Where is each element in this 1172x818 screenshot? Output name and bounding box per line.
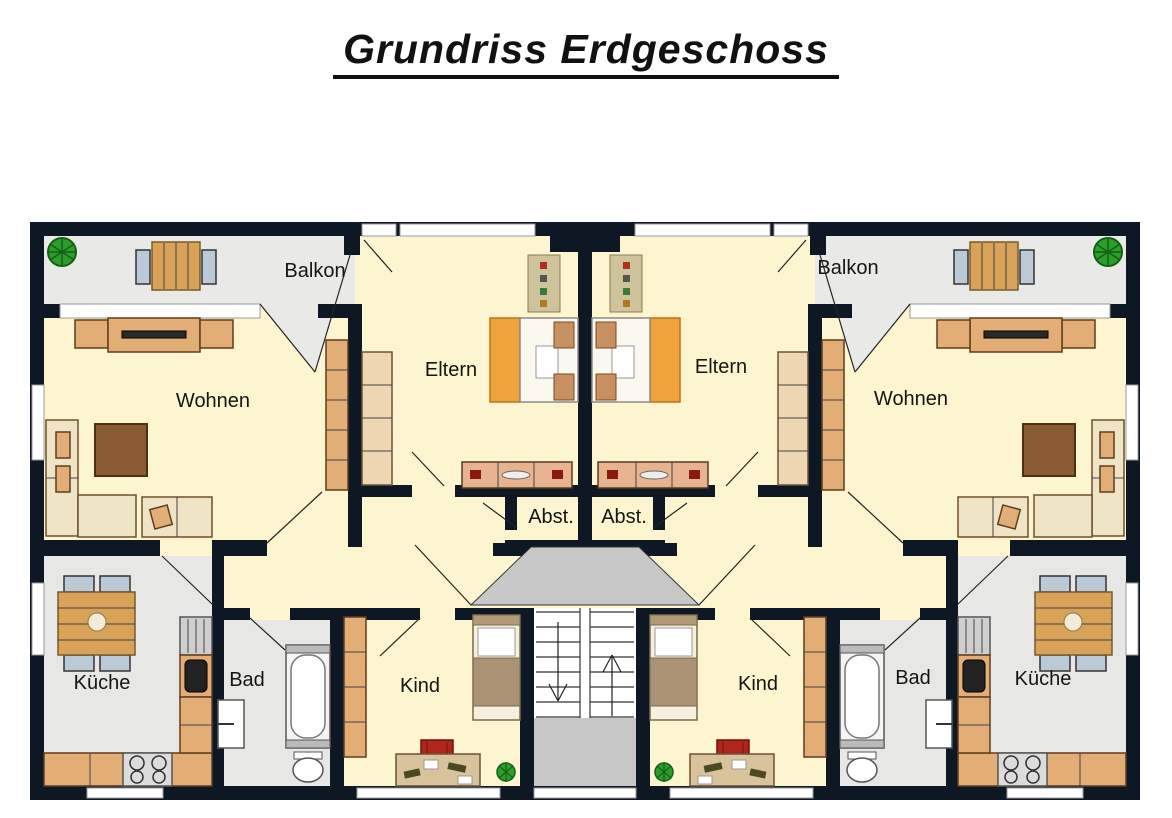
staircase [534,608,636,798]
apartment-right [585,222,1140,800]
room-label-balkon-right: Balkon [817,257,878,279]
floor-plan: Balkon Balkon Wohnen Wohnen Eltern Elter… [0,0,1172,818]
room-label-kueche-right: Küche [1015,668,1072,690]
room-label-eltern-right: Eltern [695,356,747,378]
apartment-left [30,222,585,800]
room-label-abst-left: Abst. [528,506,574,528]
entrance-door [534,788,636,798]
room-label-wohnen-right: Wohnen [874,388,948,410]
room-label-bad-right: Bad [895,667,931,689]
room-label-kueche-left: Küche [74,672,131,694]
room-label-kind-left: Kind [400,675,440,697]
room-label-abst-right: Abst. [601,506,647,528]
room-label-bad-left: Bad [229,669,265,691]
room-label-balkon-left: Balkon [284,260,345,282]
room-label-wohnen-left: Wohnen [176,390,250,412]
page: { "title": "Grundriss Erdgeschoss", "roo… [0,0,1172,818]
room-label-eltern-left: Eltern [425,359,477,381]
room-label-kind-right: Kind [738,673,778,695]
stair-landing [534,718,636,786]
